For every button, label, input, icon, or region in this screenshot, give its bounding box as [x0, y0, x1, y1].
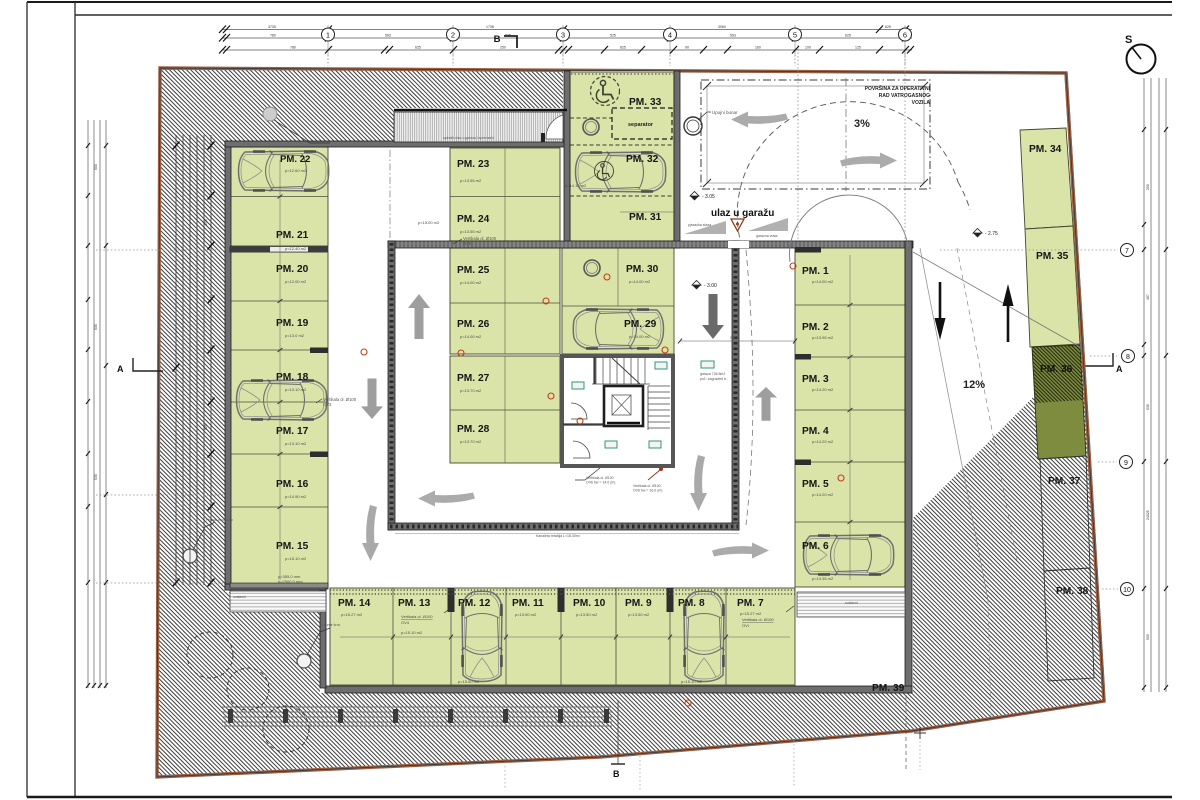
svg-text:PM. 7: PM. 7 [737, 598, 764, 609]
svg-text:24025: 24025 [1146, 510, 1150, 520]
svg-text:PM. 2: PM. 2 [802, 322, 829, 333]
svg-text:po1: zagradeni b..: po1: zagradeni b.. [700, 377, 728, 381]
svg-text:PM. 27: PM. 27 [457, 373, 490, 384]
svg-text:7: 7 [1125, 248, 1129, 255]
svg-text:780: 780 [270, 34, 276, 38]
svg-text:PM. 30: PM. 30 [626, 264, 659, 275]
svg-text:PM. 37: PM. 37 [1048, 476, 1081, 487]
svg-text:1: 1 [326, 31, 330, 40]
svg-text:p=13.55 m2: p=13.55 m2 [460, 178, 482, 183]
svg-text:PM. 16: PM. 16 [276, 479, 309, 490]
svg-text:PM. 12: PM. 12 [458, 598, 491, 609]
svg-text:160: 160 [755, 46, 761, 50]
svg-text:625: 625 [845, 34, 851, 38]
svg-text:PM. 35: PM. 35 [1036, 251, 1069, 262]
svg-text:spiralni ulaz u garazu i spre: spiralni ulaz u garazu i spremnici [443, 136, 494, 140]
svg-text:10: 10 [1123, 587, 1131, 594]
svg-text:PM. 5: PM. 5 [802, 479, 829, 490]
svg-text:3%: 3% [854, 118, 870, 130]
svg-text:PM. 33: PM. 33 [629, 97, 662, 108]
svg-text:5: 5 [793, 31, 797, 40]
svg-text:1738: 1738 [486, 25, 494, 29]
svg-text:100: 100 [805, 46, 811, 50]
svg-text:PM. 13: PM. 13 [398, 598, 431, 609]
svg-text:i bunar krov: i bunar krov [322, 623, 341, 627]
svg-text:PM. 38: PM. 38 [1056, 586, 1089, 597]
svg-text:90: 90 [685, 46, 689, 50]
svg-text:OV6 bw = 14.0 (m): OV6 bw = 14.0 (m) [586, 481, 615, 485]
svg-text:9: 9 [1124, 460, 1128, 467]
svg-text:Upojni bunar: Upojni bunar [712, 110, 738, 115]
svg-text:p=13.50 m2: p=13.50 m2 [628, 612, 650, 617]
svg-text:OV4: OV4 [401, 620, 410, 625]
svg-text:p=15.00 m2: p=15.00 m2 [418, 220, 440, 225]
svg-text:OV6 bw = 16.0 (m): OV6 bw = 16.0 (m) [633, 489, 662, 493]
svg-text:PM. 22: PM. 22 [280, 154, 310, 165]
svg-text:125: 125 [855, 46, 861, 50]
svg-text:S: S [1125, 34, 1132, 46]
svg-text:p=14.20 m2: p=14.20 m2 [812, 439, 834, 444]
svg-text:p=12.00 m2: p=12.00 m2 [285, 279, 307, 284]
svg-text:PM. 26: PM. 26 [457, 319, 490, 330]
svg-text:PM. 32: PM. 32 [626, 154, 659, 165]
svg-text:6: 6 [903, 31, 907, 40]
svg-text:p=15.10 m2: p=15.10 m2 [681, 679, 703, 684]
svg-text:780: 780 [290, 46, 296, 50]
svg-text:p=14.20 m2: p=14.20 m2 [812, 492, 834, 497]
svg-text:2: 2 [451, 31, 455, 40]
svg-text:p=15.10 m2: p=15.10 m2 [285, 556, 307, 561]
svg-text:p=14.00 m2: p=14.00 m2 [629, 279, 651, 284]
svg-text:ulaz u garažu: ulaz u garažu [711, 208, 774, 219]
svg-text:PM. 1: PM. 1 [802, 266, 829, 277]
svg-text:p=14.20 m2: p=14.20 m2 [812, 387, 834, 392]
svg-text:530: 530 [94, 324, 98, 330]
svg-text:OV3: OV3 [323, 402, 332, 407]
svg-text:- 3.05: - 3.05 [702, 194, 715, 200]
svg-text:12%: 12% [963, 379, 985, 391]
svg-text:Vertikala ol. Ø100: Vertikala ol. Ø100 [742, 617, 774, 622]
svg-text:3: 3 [561, 31, 565, 40]
svg-text:530: 530 [1146, 404, 1150, 410]
svg-text:PM. 25: PM. 25 [457, 265, 490, 276]
svg-text:B: B [494, 34, 501, 45]
svg-text:p=13.95 m2: p=13.95 m2 [812, 335, 834, 340]
svg-text:PM. 34: PM. 34 [1029, 144, 1062, 155]
svg-text:RAD VATROGASNOG: RAD VATROGASNOG [879, 93, 930, 99]
svg-text:p=15.10 m2: p=15.10 m2 [401, 630, 423, 635]
svg-text:525: 525 [204, 424, 208, 430]
svg-text:PM. 31: PM. 31 [629, 212, 662, 223]
svg-text:A: A [1116, 364, 1123, 374]
svg-text:p=13.0 m2: p=13.0 m2 [285, 333, 305, 338]
svg-text:garaza 736.5m2: garaza 736.5m2 [700, 372, 725, 376]
svg-text:separator: separator [628, 122, 654, 128]
svg-text:500: 500 [94, 164, 98, 170]
svg-text:PM. 36: PM. 36 [1040, 364, 1073, 375]
svg-text:563: 563 [730, 34, 736, 38]
svg-text:sustavni: sustavni [233, 595, 246, 599]
svg-text:PM. 4: PM. 4 [802, 426, 829, 437]
svg-text:PM. 14: PM. 14 [338, 598, 371, 609]
svg-text:p=13.50 m2: p=13.50 m2 [576, 612, 598, 617]
svg-text:p=14.00 m2: p=14.00 m2 [460, 280, 482, 285]
svg-text:p=13.70 m2: p=13.70 m2 [460, 439, 482, 444]
svg-text:825: 825 [620, 46, 626, 50]
svg-text:PM. 23: PM. 23 [457, 159, 490, 170]
svg-text:PM. 17: PM. 17 [276, 426, 309, 437]
svg-text:POVRŠINA ZA OPERATIVNI: POVRŠINA ZA OPERATIVNI [865, 84, 931, 92]
svg-text:PM. 3: PM. 3 [802, 374, 829, 385]
svg-text:p=13.50 m2: p=13.50 m2 [515, 612, 537, 617]
svg-text:625: 625 [415, 46, 421, 50]
svg-text:- 2.75: - 2.75 [985, 231, 998, 237]
svg-text:Vertikala ol. Ø100: Vertikala ol. Ø100 [401, 614, 433, 619]
svg-text:p=14.00 m2: p=14.00 m2 [629, 334, 651, 339]
svg-text:525: 525 [610, 34, 616, 38]
svg-text:625: 625 [885, 25, 891, 29]
svg-text:p=15.60 m2: p=15.60 m2 [458, 679, 480, 684]
svg-text:PM. 19: PM. 19 [276, 318, 309, 329]
svg-text:p=15.27 m2: p=15.27 m2 [740, 611, 762, 616]
svg-text:PM. 21: PM. 21 [276, 230, 309, 241]
svg-text:250: 250 [204, 219, 208, 225]
svg-text:B: B [613, 769, 620, 779]
svg-text:467: 467 [1146, 294, 1150, 300]
svg-text:PM. 15: PM. 15 [276, 541, 309, 552]
svg-text:3735: 3735 [268, 25, 276, 29]
svg-text:Kanaleta retašija L=18.30m²: Kanaleta retašija L=18.30m² [536, 534, 581, 538]
svg-text:PM. 9: PM. 9 [625, 598, 652, 609]
svg-text:530: 530 [94, 474, 98, 480]
svg-text:Vertikala ol. Ø100: Vertikala ol. Ø100 [586, 476, 614, 480]
svg-text:- 3.00: - 3.00 [704, 283, 717, 289]
svg-text:500: 500 [1146, 634, 1150, 640]
svg-text:8: 8 [1126, 354, 1130, 361]
svg-text:sustavni: sustavni [845, 601, 858, 605]
svg-text:p=15.27 m2: p=15.27 m2 [341, 612, 363, 617]
svg-text:PM. 39: PM. 39 [872, 683, 905, 694]
svg-text:p=14.10 m2: p=14.10 m2 [565, 183, 587, 188]
svg-text:960: 960 [730, 336, 736, 340]
svg-text:p=14.00 m2: p=14.00 m2 [812, 279, 834, 284]
svg-text:h=2500.0 mm: h=2500.0 mm [278, 579, 303, 584]
svg-text:p=13.70 m2: p=13.70 m2 [460, 388, 482, 393]
svg-text:250: 250 [1146, 184, 1150, 190]
svg-text:A: A [117, 364, 124, 374]
svg-text:OVI: OVI [742, 623, 749, 628]
svg-text:Vertikala ol. Ø100: Vertikala ol. Ø100 [633, 484, 661, 488]
svg-text:VOZILA: VOZILA [912, 100, 931, 106]
svg-text:pjesacka staza: pjesacka staza [688, 223, 711, 227]
svg-text:250: 250 [500, 46, 506, 50]
svg-text:PM. 8: PM. 8 [678, 598, 705, 609]
svg-text:p=14.35 m2: p=14.35 m2 [812, 576, 834, 581]
svg-text:p=13.55 m2: p=13.55 m2 [460, 229, 482, 234]
svg-text:p=13.10 m2: p=13.10 m2 [285, 387, 307, 392]
svg-text:PM. 20: PM. 20 [276, 264, 309, 275]
svg-text:4: 4 [668, 31, 672, 40]
svg-text:PM. 6: PM. 6 [802, 541, 829, 552]
svg-text:garazna vrata: garazna vrata [756, 234, 777, 238]
svg-text:p=12.60 m2: p=12.60 m2 [285, 168, 307, 173]
svg-text:p=14.00 m2: p=14.00 m2 [460, 334, 482, 339]
svg-text:p=14.90 m2: p=14.90 m2 [285, 494, 307, 499]
svg-text:r bunar prociscec: r bunar prociscec [206, 518, 233, 522]
svg-text:PM. 28: PM. 28 [457, 424, 490, 435]
svg-text:PM. 29: PM. 29 [624, 319, 657, 330]
svg-text:OV8: OV8 [463, 241, 472, 246]
svg-text:563: 563 [385, 34, 391, 38]
svg-text:PM. 10: PM. 10 [573, 598, 606, 609]
svg-text:p=13.10 m2: p=13.10 m2 [285, 441, 307, 446]
svg-text:p=12.40 m2: p=12.40 m2 [285, 246, 307, 251]
svg-text:3060: 3060 [718, 25, 726, 29]
svg-text:PM. 11: PM. 11 [512, 598, 544, 609]
svg-text:PM. 18: PM. 18 [276, 372, 309, 383]
svg-text:PM. 24: PM. 24 [457, 214, 490, 225]
